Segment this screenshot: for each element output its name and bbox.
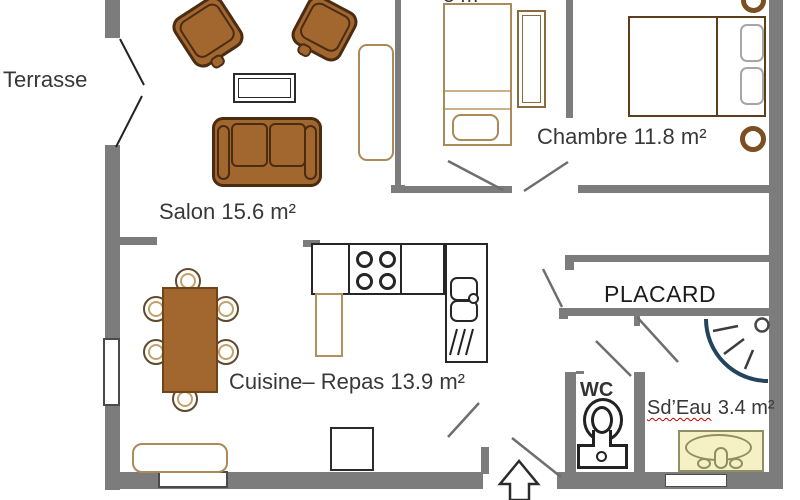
- cuisine-door-leaf: [448, 403, 479, 437]
- drainboard-line: [450, 329, 457, 355]
- shower-head-icon: [756, 319, 769, 332]
- drainboard-line: [466, 329, 473, 355]
- terrasse-door-leaf: [116, 96, 142, 147]
- floor-plan: Terrasse Salon 15.6 m² Chambre 11.8 m² C…: [0, 0, 800, 500]
- placard-door-leaf: [543, 269, 562, 307]
- terrasse-door-leaf: [120, 39, 144, 85]
- entrance-arrow-icon: [500, 461, 538, 500]
- sdeau-door-leaf: [637, 317, 678, 362]
- wc-door-leaf: [596, 341, 631, 376]
- drainboard-line: [458, 329, 465, 355]
- chambre8-door-leaf: [448, 161, 503, 190]
- shower-spray-line: [713, 326, 738, 331]
- shower-spray-line: [745, 350, 753, 369]
- plan-lines-overlay: [0, 0, 800, 500]
- chambre11-door-leaf: [524, 162, 568, 191]
- shower-spray-line: [724, 339, 744, 354]
